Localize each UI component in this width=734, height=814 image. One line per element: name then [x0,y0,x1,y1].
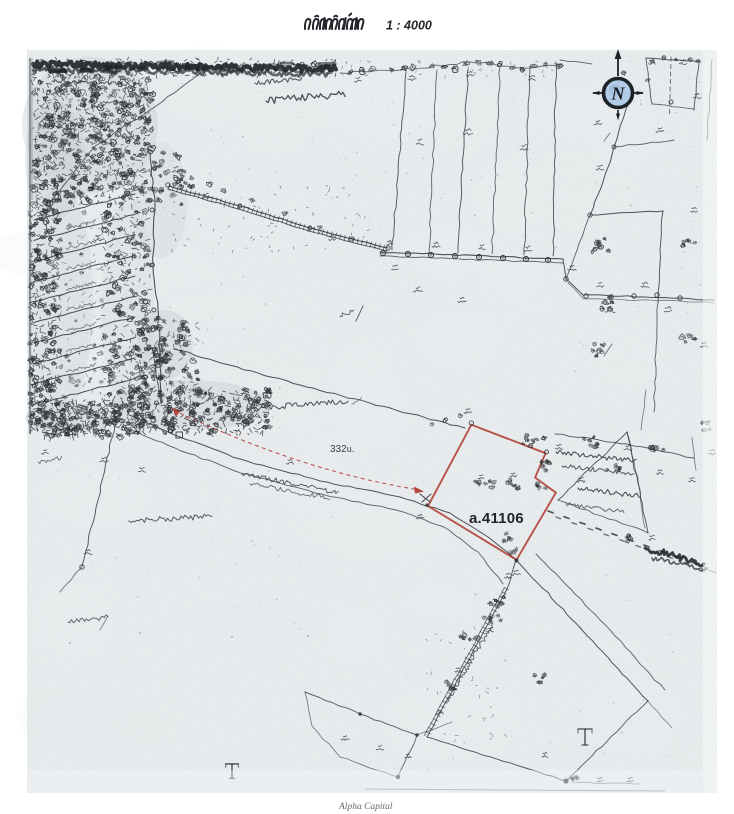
svg-text:332u.: 332u. [330,444,354,455]
svg-text:Alpha Capital: Alpha Capital [338,802,393,812]
svg-text:a.41106: a.41106 [469,510,524,527]
svg-text:N: N [611,84,626,104]
svg-text:1 : 4000: 1 : 4000 [386,19,432,33]
